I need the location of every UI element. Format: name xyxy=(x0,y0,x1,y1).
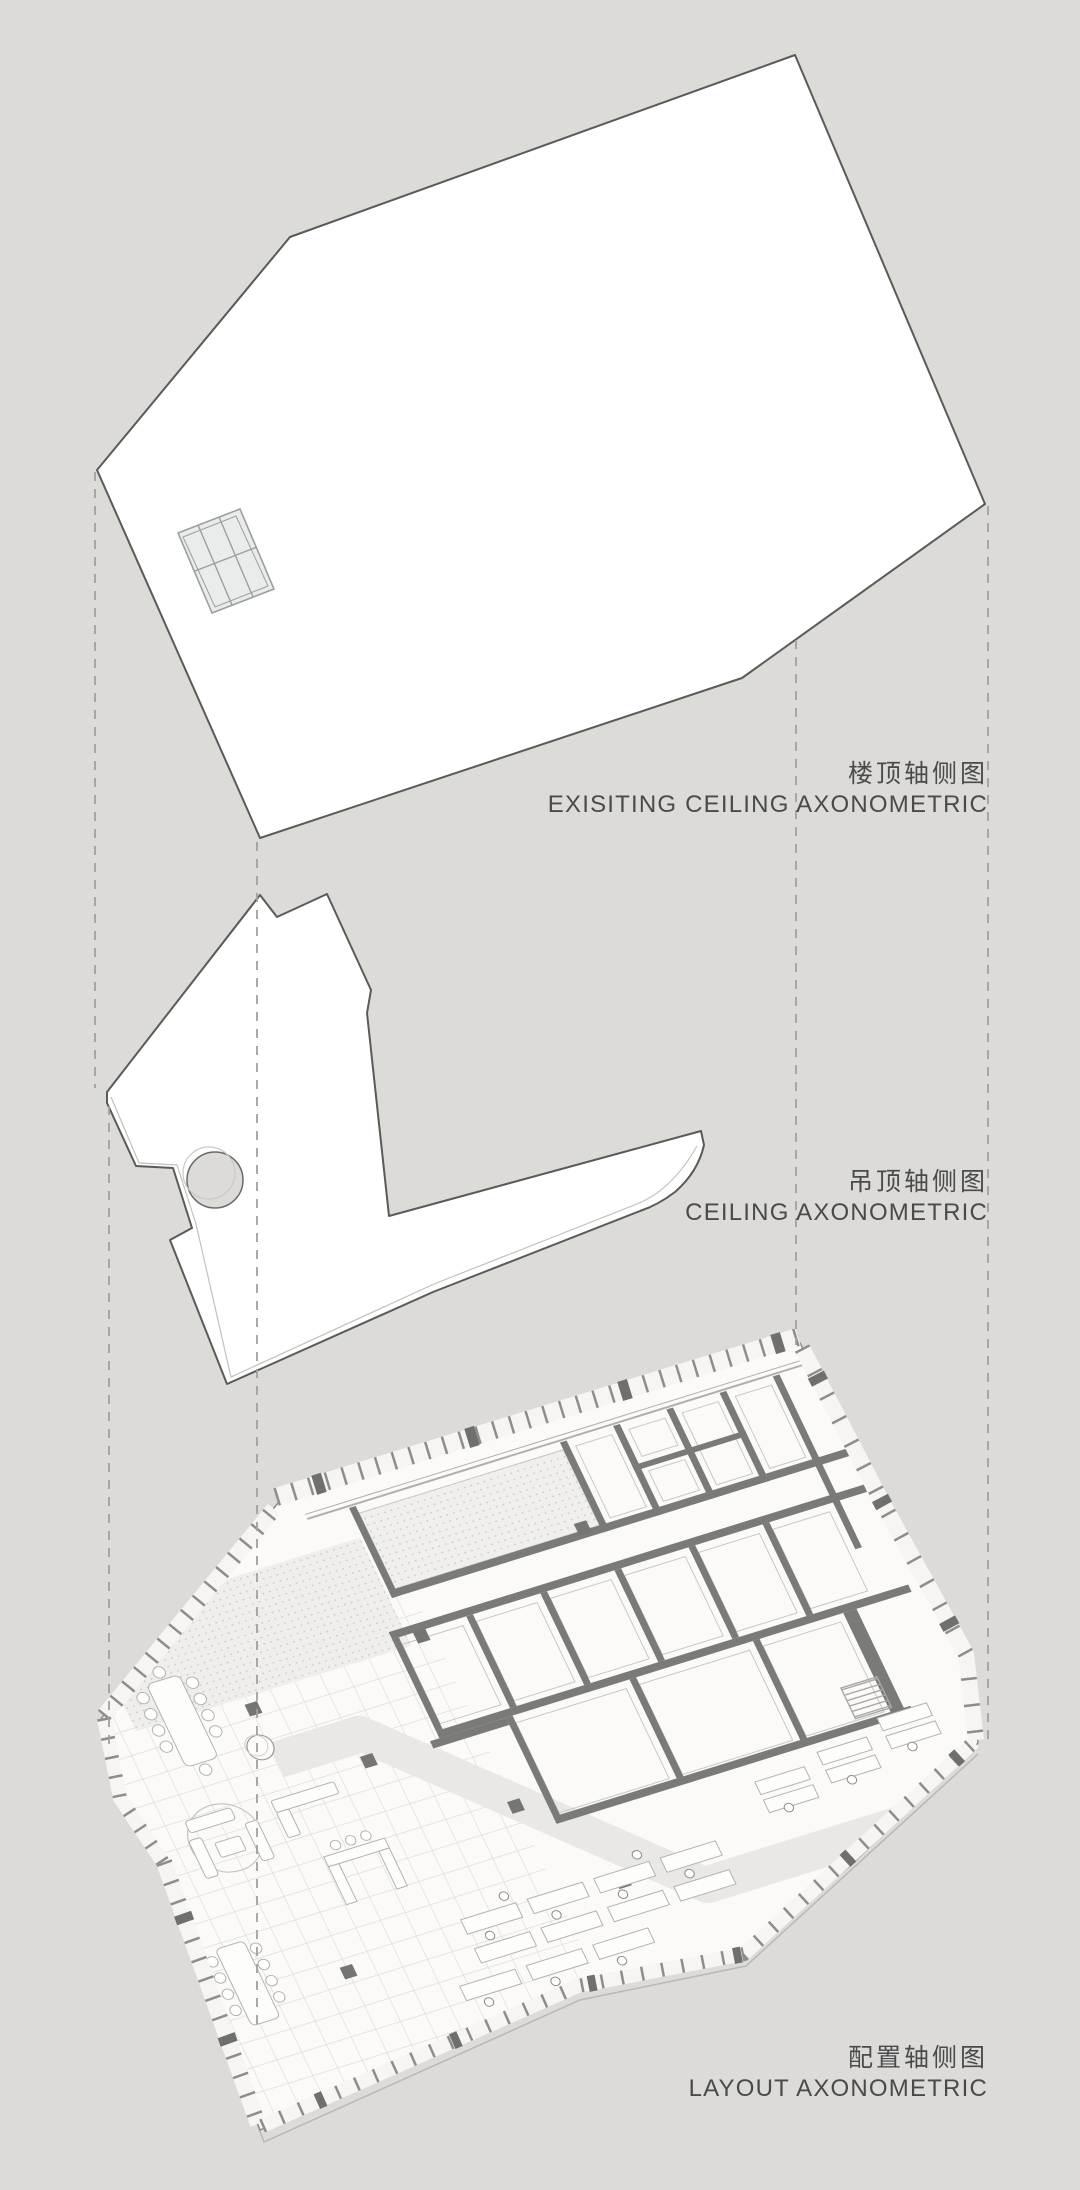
existing-ceiling-view xyxy=(97,55,985,838)
existing-ceiling-label-en: EXISITING CEILING AXONOMETRIC xyxy=(548,791,988,818)
ceiling-label-zh: 吊顶轴侧图 xyxy=(848,1168,988,1196)
existing-ceiling-label-zh: 楼顶轴侧图 xyxy=(848,760,988,788)
layout-label-zh: 配置轴侧图 xyxy=(848,2044,988,2072)
layout-view xyxy=(6,1337,1053,2142)
axonometric-diagram: 楼顶轴侧图 EXISITING CEILING AXONOMETRIC 吊顶轴侧… xyxy=(0,0,1080,2190)
diagram-canvas: 楼顶轴侧图 EXISITING CEILING AXONOMETRIC 吊顶轴侧… xyxy=(0,0,1080,2190)
layout-label-en: LAYOUT AXONOMETRIC xyxy=(689,2075,988,2102)
ceiling-plane xyxy=(107,894,704,1384)
ceiling-view xyxy=(107,894,704,1384)
ceiling-label-en: CEILING AXONOMETRIC xyxy=(685,1199,988,1226)
roof-plane xyxy=(97,55,985,838)
